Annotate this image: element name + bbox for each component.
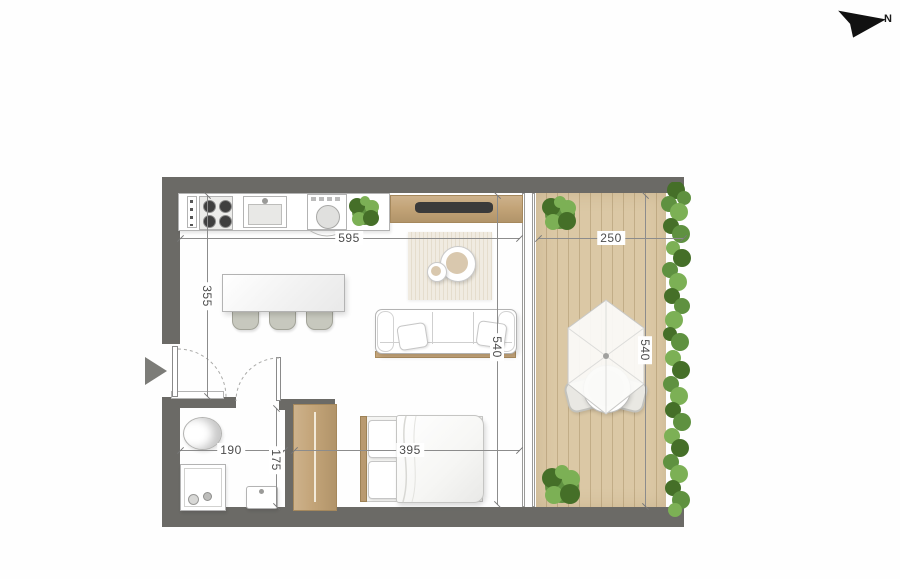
dining-table (222, 274, 345, 312)
sofa-pillow-left (396, 322, 429, 351)
toilet (183, 417, 222, 450)
spice-rack-dots (190, 200, 193, 226)
floor-plan: 595 250 355 540 540 190 175 395 N (0, 0, 900, 579)
sofa-seat-divider (473, 312, 474, 344)
dim-label-interior-depth: 540 (490, 333, 504, 361)
dim-label-bathroom-depth: 175 (269, 446, 283, 474)
bed-headboard (360, 416, 367, 502)
dim-label-bathroom-width: 190 (217, 443, 245, 457)
burner (219, 215, 232, 228)
outdoor-table-top (588, 370, 624, 406)
burner (219, 200, 232, 213)
dim-label-balcony-depth: 540 (638, 336, 652, 364)
shower-drain-icon (188, 494, 199, 505)
burner (203, 215, 216, 228)
north-arrow-icon (838, 4, 890, 40)
burner (203, 200, 216, 213)
wall-top (162, 177, 684, 193)
shower-handle-icon (203, 492, 212, 501)
bathroom-door-leaf (276, 357, 281, 401)
north-label: N (884, 13, 892, 25)
dim-label-entry-depth: 355 (200, 282, 214, 310)
entrance-door-leaf (172, 346, 178, 397)
wall-bottom (162, 507, 684, 527)
wardrobe-seam (314, 412, 316, 502)
hedge (661, 182, 695, 518)
entry-shelf (171, 391, 224, 399)
sink-faucet-icon (262, 198, 268, 204)
washing-machine-buttons (311, 197, 343, 201)
sofa-armrest-left (377, 311, 394, 352)
coffee-table-small-top (431, 266, 441, 276)
dim-label-balcony-width: 250 (597, 231, 625, 245)
bed-duvet (396, 415, 484, 503)
wall-left-lower (162, 397, 180, 512)
sofa-seat-divider (432, 312, 433, 344)
dim-label-interior-width: 595 (335, 231, 363, 245)
entrance-arrow-icon (145, 357, 167, 385)
dim-label-bedroom-width: 395 (396, 443, 424, 457)
coffee-table-large-top (446, 252, 468, 274)
washing-machine-drum (316, 205, 340, 229)
sink-basin (248, 204, 282, 225)
washbasin-faucet-icon (259, 489, 264, 494)
tv (415, 202, 493, 213)
glass-wall-pane-inner (522, 193, 525, 507)
